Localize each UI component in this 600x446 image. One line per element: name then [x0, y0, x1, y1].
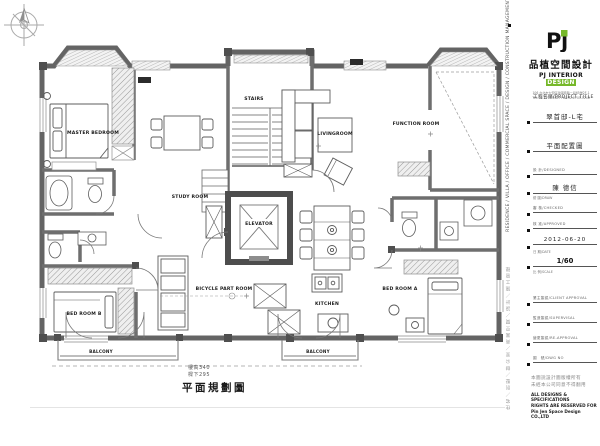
company-name-en: PJ INTERIOR DESIGN [528, 72, 594, 86]
check-label: 審 核/CHECKED [533, 206, 597, 212]
sign-row-label: 圖 號/DWG NO [533, 356, 597, 362]
room-label-kitchen: KITCHEN [315, 301, 339, 307]
row-bullet [527, 229, 530, 232]
sign-row-3: 變更簽認/RE-APPROVAL [533, 336, 597, 343]
design-accent: DESIGN [546, 79, 575, 86]
sign-row-1: 業主簽認/CLIENT APPROVAL [533, 296, 597, 303]
copyright-en-line3: Pin Jen Space Design CO.,LTD [531, 409, 597, 420]
copyright-cn-line1: 本圖說設計圖版權所有 [531, 376, 597, 383]
project-name-row: 翠首邸-L宅 [533, 112, 597, 123]
room-label-master-bedroom: MASTER BEDROOM [67, 130, 119, 136]
draw-label: 繪 圖/DRAW [533, 195, 597, 200]
project-name: 翠首邸-L宅 [533, 112, 597, 122]
copyright-block: 本圖說設計圖版權所有 未經本公司同意不得翻用 ALL DESIGNS & SPE… [531, 376, 597, 420]
master-bath-fixtures [46, 176, 103, 210]
date-row: 2012-06-20 [533, 237, 597, 245]
row-bullet [527, 323, 530, 326]
room-label-stairs: STAIRS [244, 96, 263, 102]
company-name-cn: 品植空間設計 [528, 57, 594, 71]
check-row: 審 核/CHECKED [533, 206, 597, 213]
row-bullet [527, 266, 530, 269]
design-row: 設 計/DESIGNED [533, 168, 597, 175]
room-label-elevator: ELEVATOR [245, 221, 273, 227]
sign-row-label: 變更簽認/RE-APPROVAL [533, 336, 597, 342]
row-bullet [527, 363, 530, 366]
sign-row-4: 圖 號/DWG NO [533, 356, 597, 363]
room-label-function-room: FUNCTION ROOM [393, 121, 440, 127]
sign-row-2: 監造簽認/SUPERVISAL [533, 316, 597, 323]
master-bed [44, 93, 109, 168]
row-bullet [527, 303, 530, 306]
sheet-divider-line [30, 407, 505, 408]
sign-row-label: 業主簽認/CLIENT APPROVAL [533, 296, 597, 302]
kitchen-furniture [300, 206, 364, 332]
pj-logo-mark-icon: P j [546, 30, 576, 52]
function-room-dashes [436, 72, 494, 184]
drawing-sheet: MASTER BEDROOM STUDY ROOM STAIRS LIVINGR… [0, 0, 600, 446]
elevator-shaft [228, 194, 290, 262]
svg-text:P: P [546, 30, 561, 52]
copyright-en: ALL DESIGNS & SPECIFICATIONS RIGHTS ARE … [531, 392, 597, 420]
project-title-label: 工程名稱/PROJECT TITLE [533, 94, 597, 100]
scale-row: 1/60 [533, 257, 597, 267]
sidebar-bullet-top [508, 24, 511, 27]
bath2-fixtures [48, 232, 106, 258]
drawing-name: 平面配置圖 [533, 141, 597, 151]
bathA-fixtures [402, 200, 492, 240]
room-label-bicycle-part-room: BICYCLE PART ROOM [196, 286, 253, 292]
row-bullet [527, 343, 530, 346]
designer-row: 陳 德信 [533, 183, 597, 194]
copyright-en-line2: RIGHTS ARE RESERVED FOR [531, 403, 597, 409]
copyright-cn-line2: 未經本公司同意不得翻用 [531, 383, 597, 390]
row-bullet [527, 213, 530, 216]
row-bullet [527, 246, 530, 249]
scale-label: 比 例/SCALE [533, 269, 597, 274]
scale-value: 1/60 [533, 257, 597, 266]
row-bullet [527, 192, 530, 195]
floor-height-note: 樓高340 [188, 364, 248, 371]
date-label: 日 期/DATE [533, 249, 597, 254]
sidebar-vertical-text-cn: 住宅／別墅／辦公室／商業空間／設計／施工管理 [506, 240, 512, 410]
date-value: 2012-06-20 [533, 237, 597, 244]
drawing-name-row: 平面配置圖 [533, 141, 597, 152]
approve-label: 核 准/APPROVED [533, 222, 597, 228]
sidebar-vertical-text-en: RESIDENCE / VILLA / OFFICE / COMMERCIAL … [506, 26, 511, 232]
room-label-balcony-right: BALCONY [306, 349, 330, 354]
row-bullet [527, 150, 530, 153]
room-label-balcony-left: BALCONY [89, 349, 113, 354]
room-label-study-room: STUDY ROOM [172, 194, 209, 200]
designer-name: 陳 德信 [533, 183, 597, 193]
room-label-bed-room-b: BED ROOM B [66, 311, 101, 317]
copyright-en-line1: ALL DESIGNS & SPECIFICATIONS [531, 392, 597, 403]
row-bullet [527, 121, 530, 124]
room-label-bed-room-a: BED ROOM A [382, 286, 417, 292]
company-logo: P j 品植空間設計 PJ INTERIOR DESIGN 106 台北市大安區… [528, 30, 594, 100]
sign-row-label: 監造簽認/SUPERVISAL [533, 316, 597, 322]
design-label: 設 計/DESIGNED [533, 168, 597, 174]
room-label-livingroom: LIVINGROOM [317, 131, 353, 137]
approve-row: 核 准/APPROVED [533, 222, 597, 229]
north-compass-icon [4, 4, 44, 46]
row-bullet [527, 175, 530, 178]
study-table [151, 116, 213, 150]
beam-height-note: 樑下295 [188, 371, 248, 378]
sheet-title: 平面規劃圖 [182, 380, 247, 395]
